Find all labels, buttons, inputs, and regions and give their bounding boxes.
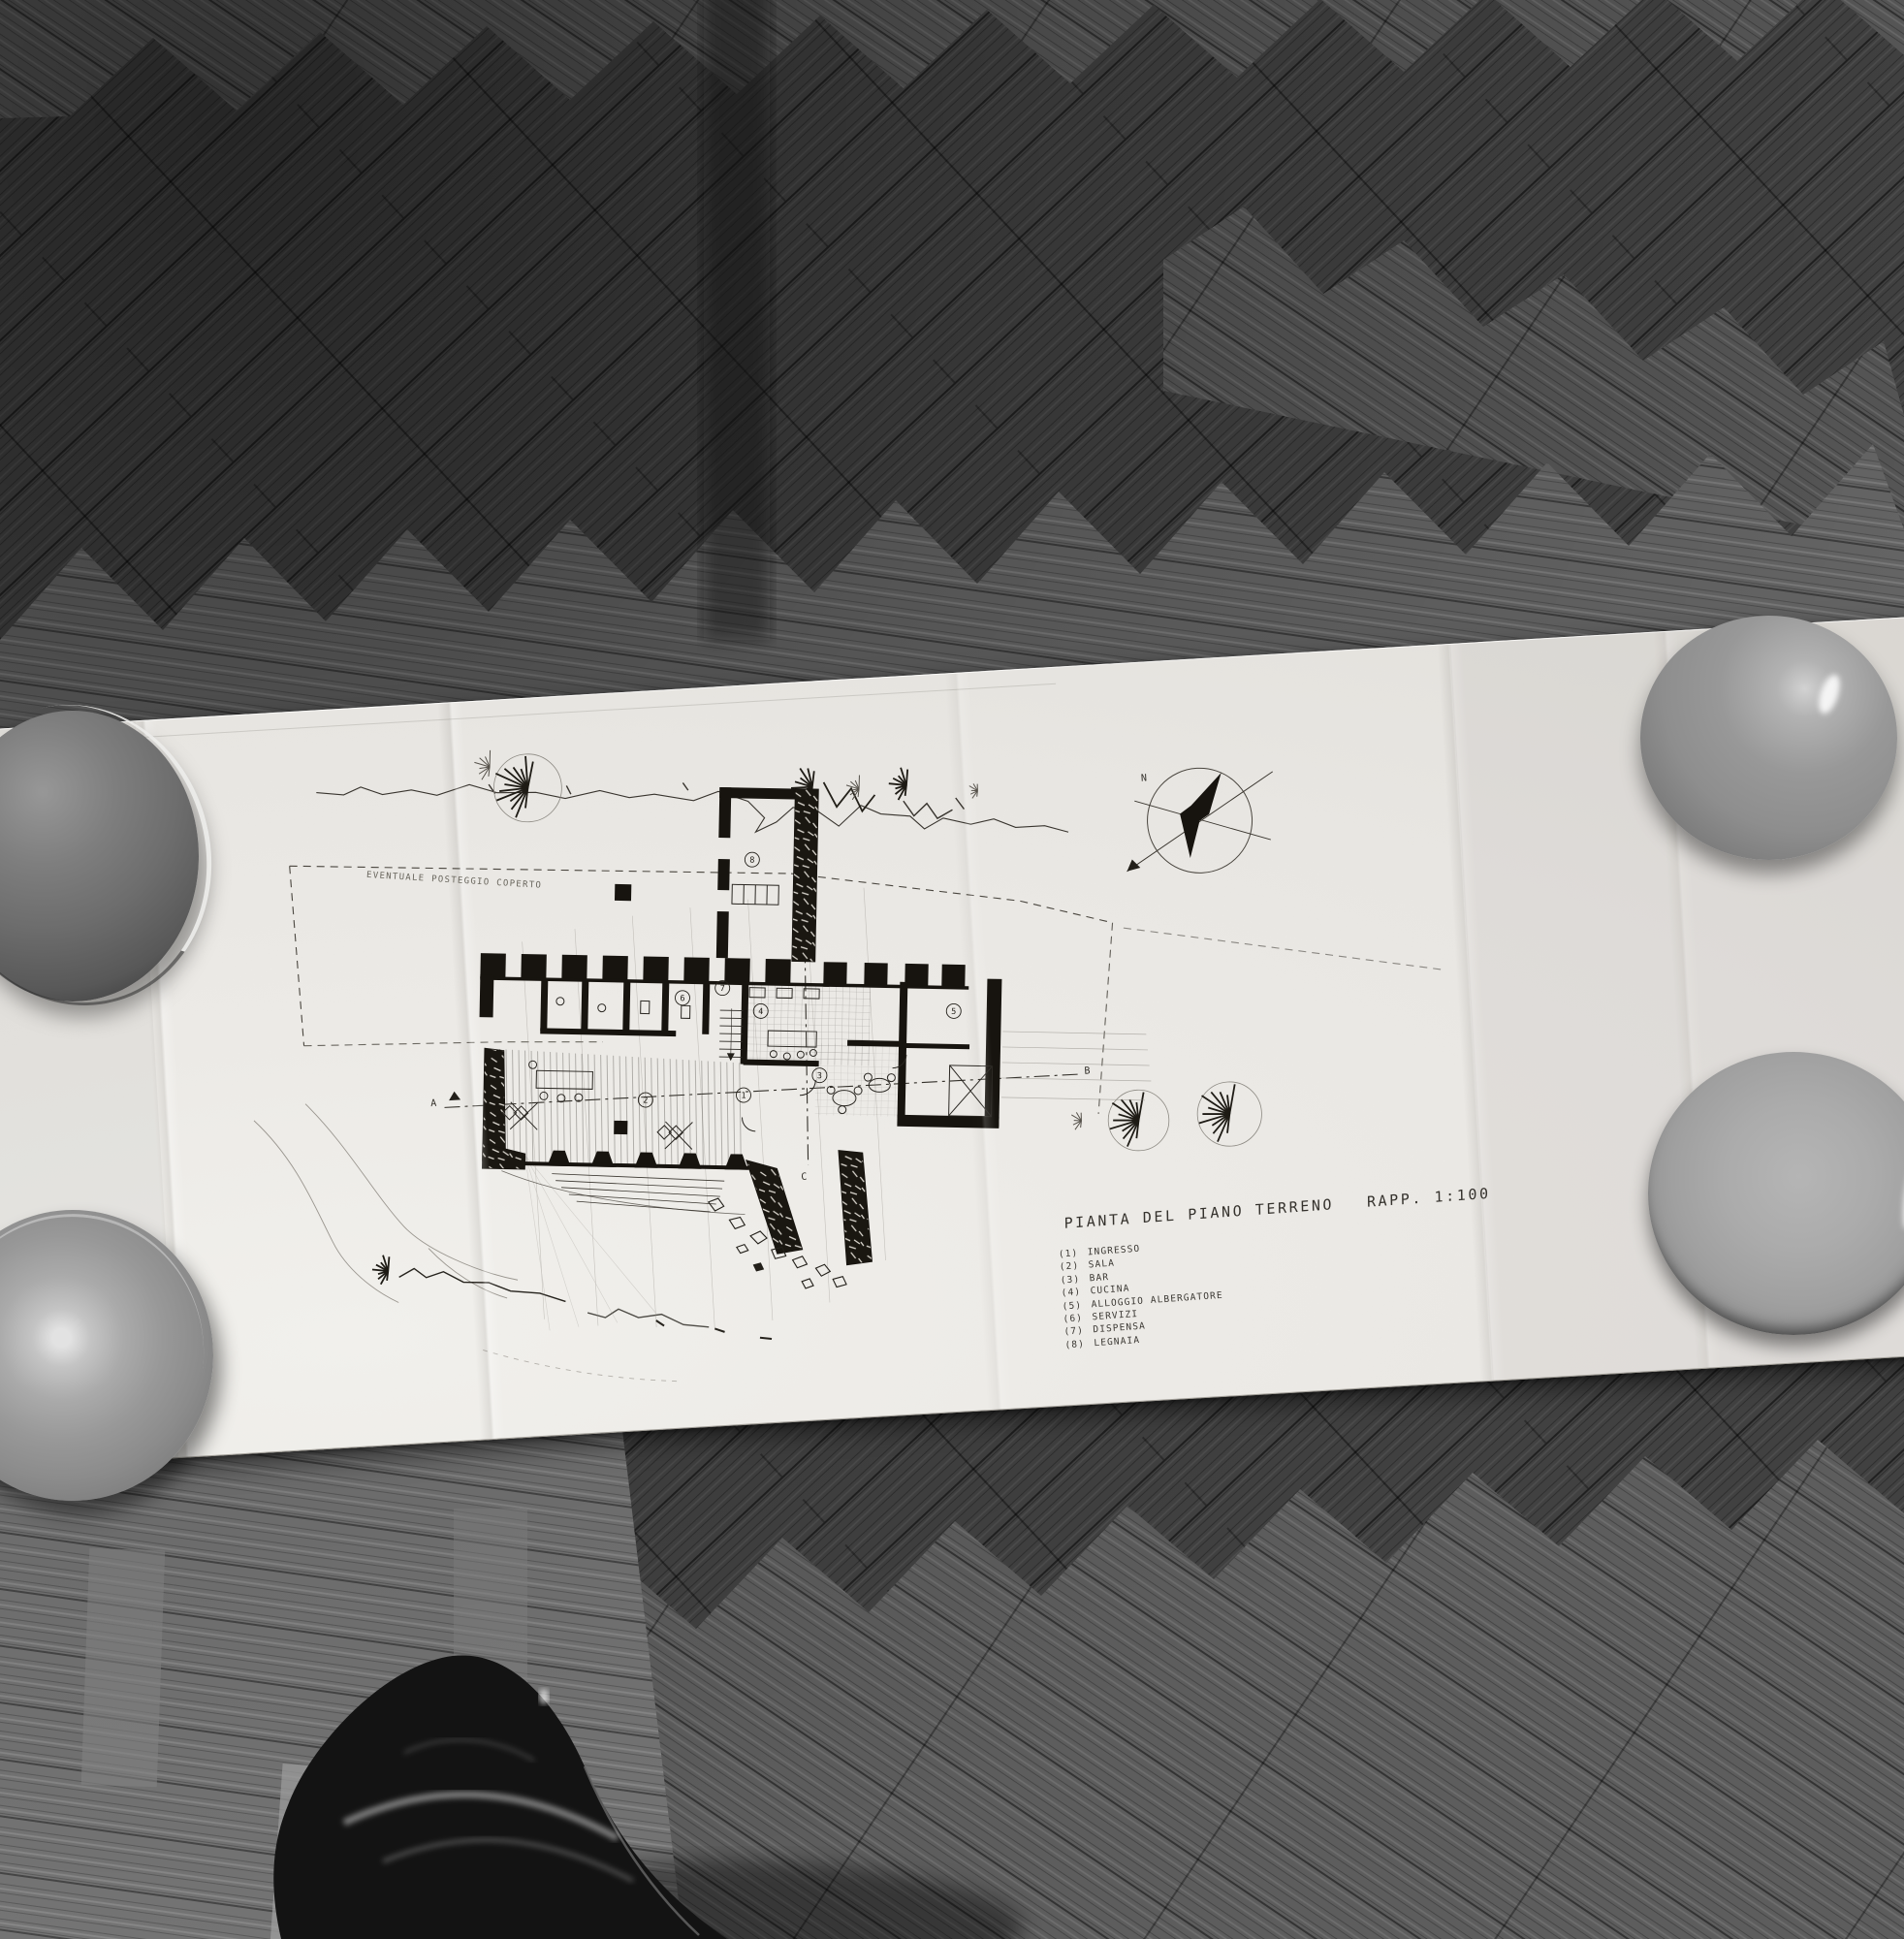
rock-horizon-sketch (316, 746, 1068, 875)
svg-text:7: 7 (720, 984, 725, 994)
paperweight-bowl-top-left (0, 711, 199, 1001)
photo-floorplan-on-parquet: { "scene": { "kind": "black-and-white ph… (0, 0, 1904, 1939)
svg-text:1: 1 (741, 1092, 746, 1101)
sala-striped-floor (482, 1048, 743, 1169)
floor-plan-drawing: A B C D N (0, 613, 1904, 1469)
pergola-lines (1001, 1032, 1152, 1100)
svg-text:2: 2 (643, 1096, 648, 1105)
section-label-a: A (430, 1098, 437, 1109)
svg-text:5: 5 (951, 1007, 956, 1017)
stairs (719, 1008, 744, 1061)
black-leather-shoe (199, 1637, 1071, 1939)
building-plan: 12345678 (474, 782, 1157, 1295)
svg-text:3: 3 (817, 1071, 822, 1081)
svg-text:6: 6 (680, 994, 684, 1003)
room-legend: (1)INGRESSO(2)SALA(3)BAR(4)CUCINA(5)ALLO… (1058, 1237, 1226, 1352)
svg-text:8: 8 (749, 856, 754, 866)
svg-text:4: 4 (758, 1007, 763, 1017)
paper-sheet-floorplan: A B C D N (0, 612, 1904, 1470)
section-label-b: B (1084, 1065, 1091, 1076)
compass-n-label: N (1141, 773, 1148, 783)
section-label-c: C (801, 1172, 808, 1183)
paperweight-bowl-top-right (1640, 616, 1897, 860)
